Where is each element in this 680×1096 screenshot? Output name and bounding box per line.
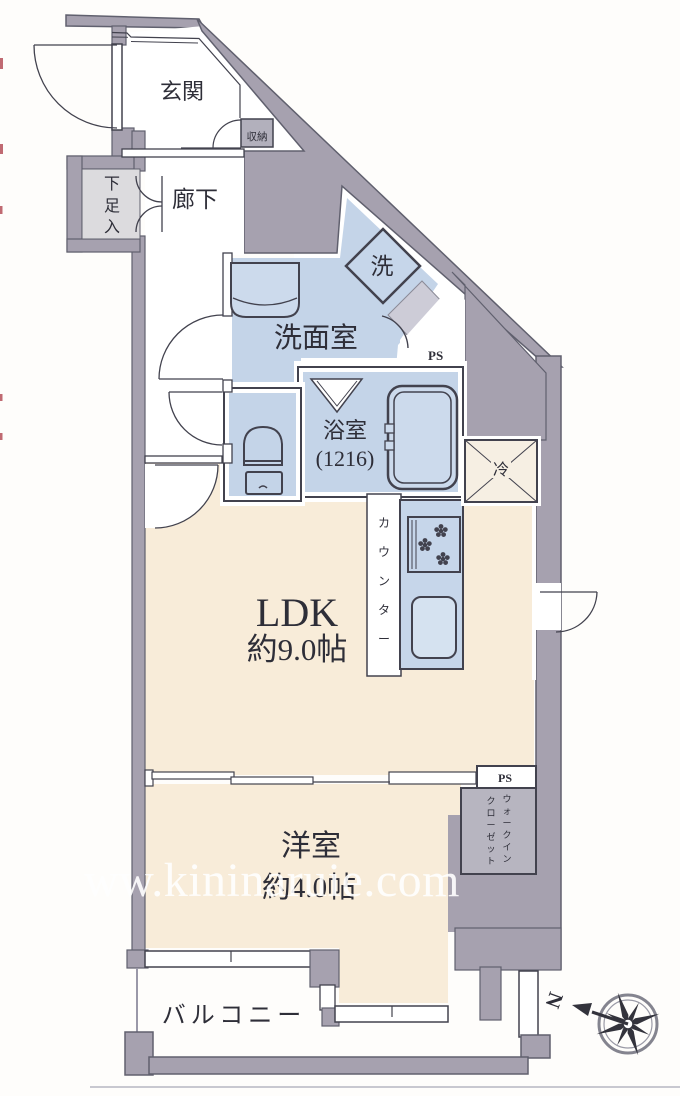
svg-text:足: 足 <box>104 198 120 215</box>
svg-text:ゼ: ゼ <box>486 831 495 842</box>
svg-text:LDK: LDK <box>256 590 338 635</box>
svg-text:約9.0帖: 約9.0帖 <box>247 632 348 667</box>
svg-text:PS: PS <box>428 348 443 363</box>
svg-text:ウ: ウ <box>502 794 511 804</box>
svg-text:ー: ー <box>378 632 390 646</box>
svg-text:下: 下 <box>104 176 120 193</box>
svg-text:イ: イ <box>502 842 511 852</box>
svg-text:カ: カ <box>378 516 390 530</box>
svg-text:ト: ト <box>486 856 495 866</box>
svg-text:N: N <box>541 989 569 1011</box>
svg-text:ウ: ウ <box>378 545 390 559</box>
svg-text:廊下: 廊下 <box>172 187 218 212</box>
svg-text:冷: 冷 <box>493 461 509 479</box>
svg-text:ー: ー <box>486 820 495 830</box>
svg-text:収納: 収納 <box>247 130 268 143</box>
svg-text:入: 入 <box>104 219 120 236</box>
svg-text:洗: 洗 <box>371 254 394 279</box>
svg-text:バルコニー: バルコニー <box>162 1003 307 1029</box>
svg-text:ン: ン <box>378 574 390 588</box>
svg-text:PS: PS <box>498 771 512 785</box>
svg-text:ー: ー <box>502 818 511 828</box>
svg-text:浴室: 浴室 <box>323 418 367 443</box>
svg-text:ク: ク <box>502 830 511 840</box>
svg-text:玄関: 玄関 <box>160 79 204 104</box>
svg-text:ッ: ッ <box>486 844 495 854</box>
svg-text:ロ: ロ <box>486 808 495 818</box>
svg-text:ww.kininaruie.com: ww.kininaruie.com <box>84 854 460 907</box>
svg-text:ク: ク <box>486 796 495 806</box>
svg-text:ォ: ォ <box>502 806 511 816</box>
svg-text:洗面室: 洗面室 <box>274 322 358 354</box>
svg-text:(1216): (1216) <box>316 446 375 471</box>
svg-text:タ: タ <box>378 603 390 617</box>
svg-text:ン: ン <box>502 854 511 864</box>
